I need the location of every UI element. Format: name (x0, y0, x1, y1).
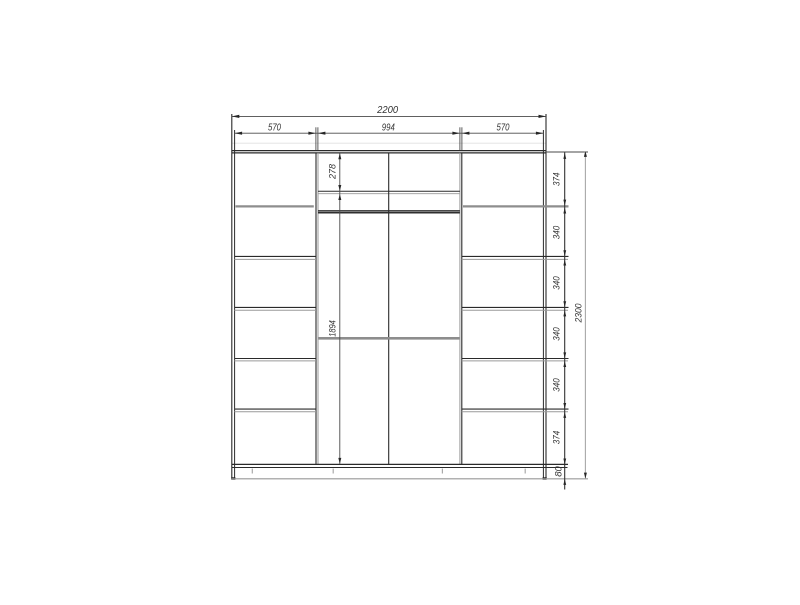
svg-text:570: 570 (497, 123, 510, 134)
svg-text:340: 340 (551, 327, 561, 341)
svg-text:340: 340 (551, 276, 561, 290)
svg-text:374: 374 (551, 431, 561, 445)
svg-text:374: 374 (551, 173, 561, 187)
svg-text:340: 340 (551, 226, 561, 240)
svg-text:2300: 2300 (573, 304, 583, 324)
svg-text:994: 994 (382, 123, 395, 134)
svg-text:278: 278 (327, 164, 337, 180)
svg-text:570: 570 (268, 123, 281, 134)
svg-text:340: 340 (551, 378, 561, 392)
svg-text:80: 80 (554, 466, 564, 477)
svg-text:1894: 1894 (328, 320, 338, 337)
svg-text:2200: 2200 (376, 105, 398, 116)
